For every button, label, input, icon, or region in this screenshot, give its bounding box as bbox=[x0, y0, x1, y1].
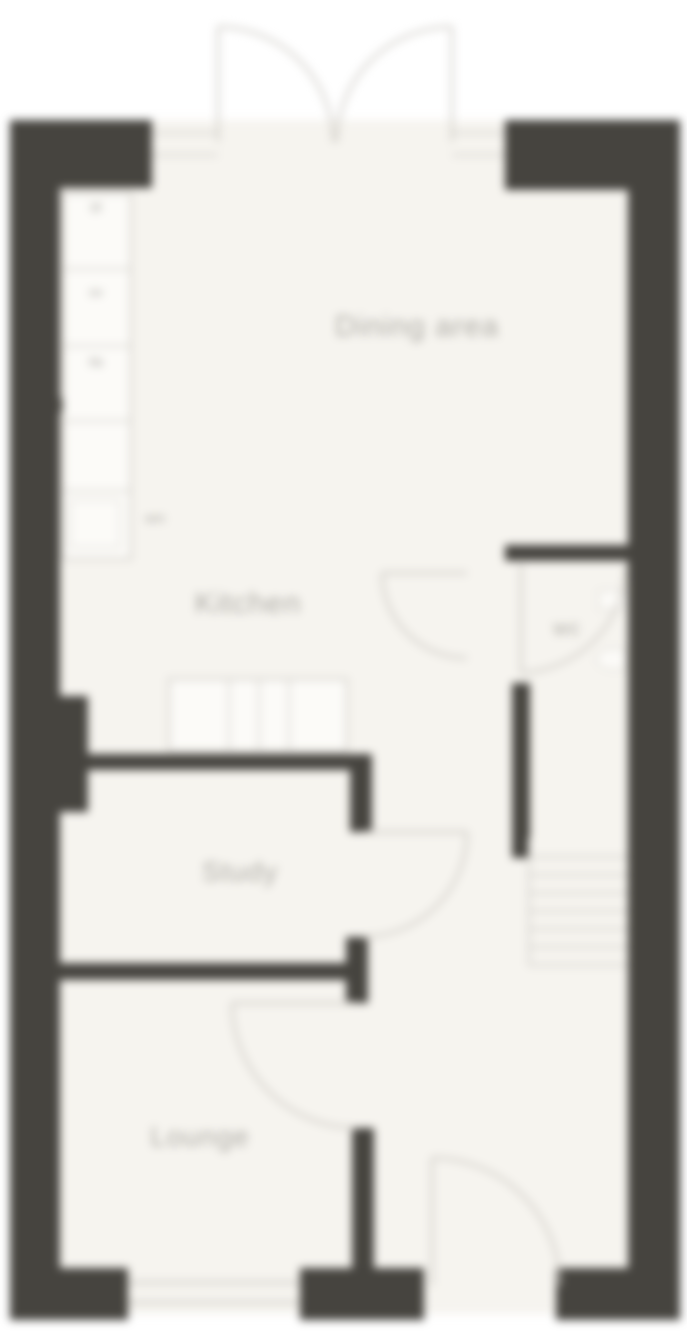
lounge-door-arc bbox=[232, 1003, 357, 1128]
door-swing-arcs bbox=[0, 0, 687, 1344]
room-label-kitchen: Kitchen bbox=[194, 587, 301, 621]
front-door-arc bbox=[432, 1158, 560, 1286]
room-label-lounge: Lounge bbox=[150, 1121, 249, 1153]
french-door-left-arc bbox=[218, 27, 333, 142]
floor-plan-page: f/f ov hb wm bbox=[0, 0, 687, 1344]
study-door-arc bbox=[362, 832, 467, 937]
room-label-wc: wc bbox=[553, 617, 581, 641]
floor-plan-drawing: f/f ov hb wm bbox=[0, 0, 687, 1344]
room-label-dining: Dining area bbox=[335, 310, 499, 344]
room-label-study: Study bbox=[202, 856, 279, 888]
hall-door-arc bbox=[382, 573, 467, 658]
french-door-right-arc bbox=[337, 27, 452, 142]
